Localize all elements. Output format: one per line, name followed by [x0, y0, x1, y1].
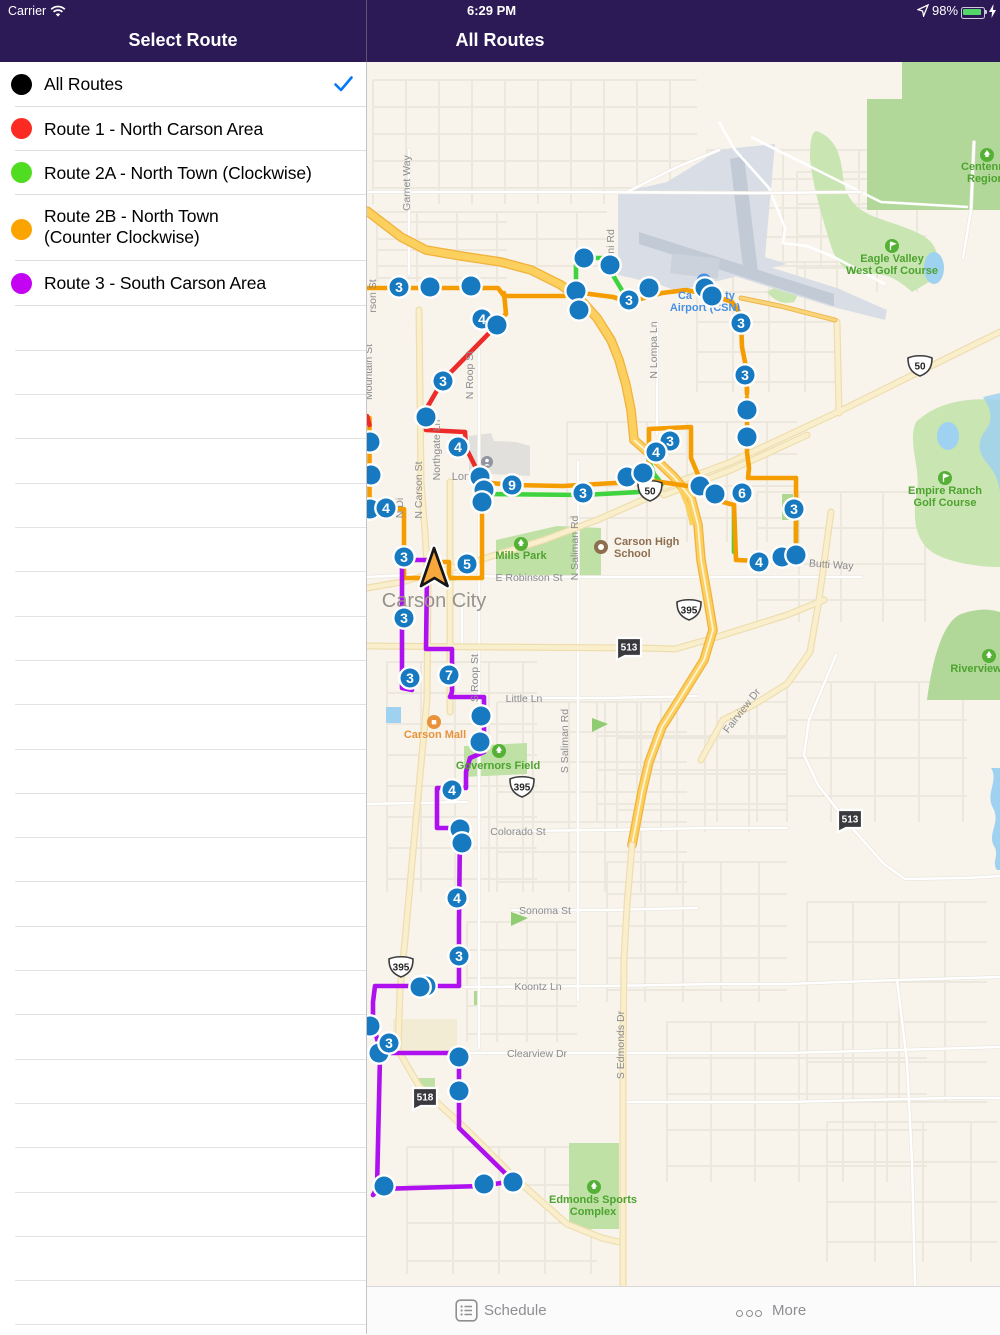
svg-text:Mountain St: Mountain St: [367, 344, 375, 400]
svg-text:4: 4: [382, 500, 390, 516]
svg-text:3: 3: [395, 279, 403, 295]
svg-text:5: 5: [463, 556, 471, 572]
svg-text:Governors Field: Governors Field: [456, 760, 540, 772]
svg-text:3: 3: [790, 501, 798, 517]
svg-text:3: 3: [385, 1035, 393, 1051]
svg-text:395: 395: [514, 783, 531, 794]
svg-text:Golf Course: Golf Course: [914, 497, 977, 509]
svg-text:Koontz Ln: Koontz Ln: [514, 981, 561, 993]
svg-text:N Lompa Ln: N Lompa Ln: [648, 321, 660, 378]
svg-text:50: 50: [914, 362, 926, 373]
svg-text:4: 4: [755, 554, 763, 570]
svg-text:3: 3: [625, 292, 633, 308]
svg-text:Complex: Complex: [570, 1206, 617, 1218]
svg-text:Sonoma St: Sonoma St: [519, 905, 571, 917]
svg-text:Carson Mall: Carson Mall: [404, 729, 466, 741]
svg-text:3: 3: [737, 315, 745, 331]
svg-text:Garnet Way: Garnet Way: [401, 154, 413, 210]
svg-text:Regional: Regional: [967, 173, 1000, 185]
svg-text:9: 9: [508, 477, 516, 493]
svg-text:3: 3: [455, 948, 463, 964]
svg-text:Centenn: Centenn: [961, 161, 1000, 173]
svg-text:S Saliman Rd: S Saliman Rd: [559, 709, 571, 773]
svg-text:Little Ln: Little Ln: [506, 693, 543, 705]
svg-text:3: 3: [439, 373, 447, 389]
svg-text:3: 3: [579, 485, 587, 501]
svg-text:4: 4: [453, 890, 461, 906]
svg-text:3: 3: [406, 670, 414, 686]
svg-text:S Roop St: S Roop St: [469, 654, 481, 702]
svg-text:Riverview: Riverview: [950, 663, 1000, 675]
svg-text:3: 3: [400, 549, 408, 565]
svg-text:ty: ty: [725, 290, 736, 302]
svg-text:4: 4: [448, 782, 456, 798]
svg-text:Carson High: Carson High: [614, 536, 680, 548]
svg-text:4: 4: [478, 311, 486, 327]
svg-text:Clearview Dr: Clearview Dr: [507, 1048, 568, 1060]
svg-text:4: 4: [454, 439, 462, 455]
svg-text:395: 395: [393, 963, 410, 974]
svg-text:N Carson St: N Carson St: [413, 461, 425, 518]
svg-text:6: 6: [738, 485, 746, 501]
svg-text:4: 4: [652, 444, 660, 460]
svg-text:50: 50: [644, 487, 656, 498]
svg-text:School: School: [614, 548, 651, 560]
svg-text:West Golf Course: West Golf Course: [846, 265, 938, 277]
svg-text:E Robinson St: E Robinson St: [495, 572, 562, 584]
svg-text:N Roop St: N Roop St: [464, 351, 476, 400]
svg-text:Colorado St: Colorado St: [490, 826, 546, 838]
svg-text:Ca: Ca: [678, 290, 693, 302]
svg-text:N Saliman Rd: N Saliman Rd: [569, 515, 581, 580]
svg-text:S Edmonds Dr: S Edmonds Dr: [615, 1010, 627, 1079]
svg-text:3: 3: [400, 610, 408, 626]
svg-text:Northgate Ln: Northgate Ln: [431, 419, 443, 480]
svg-text:7: 7: [445, 667, 453, 683]
svg-text:Eagle Valley: Eagle Valley: [860, 253, 924, 265]
svg-text:518: 518: [417, 1093, 434, 1104]
svg-text:Empire Ranch: Empire Ranch: [908, 485, 982, 497]
svg-text:395: 395: [681, 606, 698, 617]
svg-text:3: 3: [741, 367, 749, 383]
svg-text:rson St: rson St: [367, 279, 379, 312]
svg-text:Mills Park: Mills Park: [495, 550, 547, 562]
svg-text:3: 3: [666, 433, 674, 449]
svg-text:513: 513: [621, 643, 638, 654]
svg-text:Edmonds Sports: Edmonds Sports: [549, 1194, 637, 1206]
svg-text:513: 513: [842, 815, 859, 826]
